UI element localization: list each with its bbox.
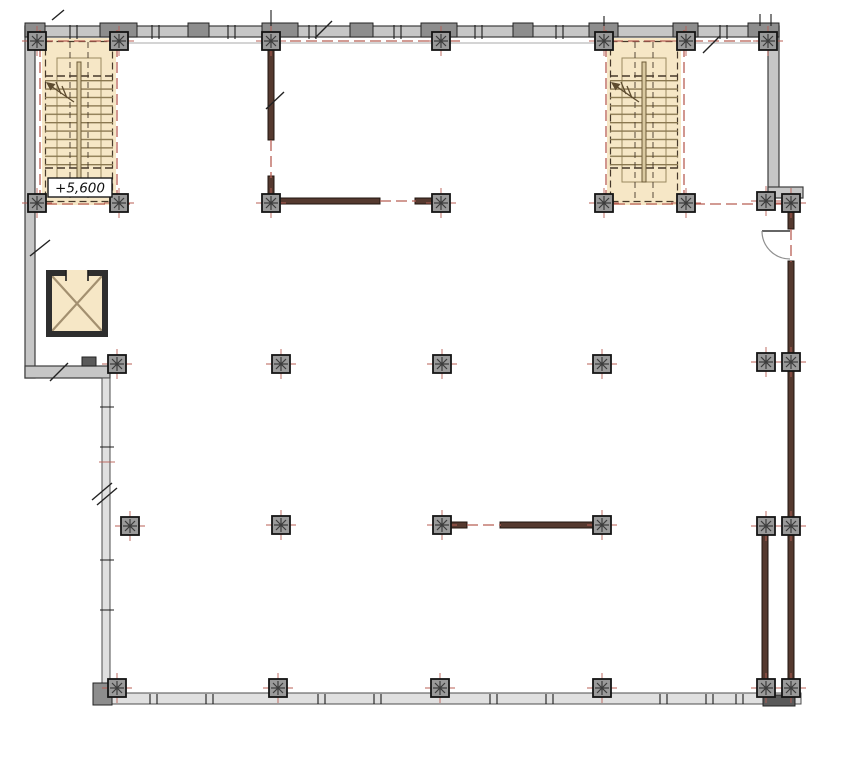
door-east [762, 231, 790, 259]
partition-row2-west [280, 198, 380, 204]
west-curtain-wall [102, 378, 110, 695]
floor-plan-canvas: +5,600 [0, 0, 841, 763]
column [115, 511, 145, 541]
level-label-text: +5,600 [55, 181, 105, 197]
elevator-wall-west [46, 270, 52, 337]
column [427, 349, 457, 379]
partition-row4-east [500, 522, 595, 528]
elevator-shaft [46, 270, 108, 337]
east-partition-wall [788, 261, 794, 518]
southeast-double-wall-west [762, 534, 768, 682]
column [776, 511, 806, 541]
column [266, 510, 296, 540]
east-wall-upper [768, 26, 779, 197]
door-arc [762, 231, 790, 259]
wall-pier [350, 23, 373, 37]
elevator-wall-south [46, 331, 108, 337]
elevator-wall-east [102, 270, 108, 337]
wall-pier [188, 23, 209, 37]
wall-pier [513, 23, 533, 37]
columns [22, 26, 806, 703]
column [587, 510, 617, 540]
north-wall [25, 26, 779, 37]
floor-plan-drawing: +5,600 [0, 0, 841, 763]
stairwell-east [607, 38, 681, 205]
column [266, 349, 296, 379]
interior-walls [268, 37, 794, 682]
elevator-door-jamb-east [88, 270, 108, 276]
column [427, 510, 457, 540]
exterior-walls [25, 26, 803, 706]
step-door-threshold [82, 357, 96, 366]
column [256, 188, 286, 218]
column [426, 188, 456, 218]
west-step-wall [25, 366, 110, 378]
southeast-double-wall-east [788, 534, 794, 682]
elevator-door-jamb-west [46, 270, 66, 276]
level-label: +5,600 [48, 178, 112, 197]
column [587, 349, 617, 379]
column [776, 347, 806, 377]
